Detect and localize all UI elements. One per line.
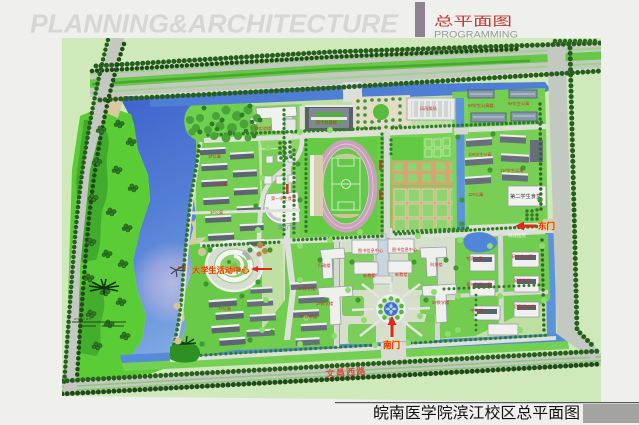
svg-text:滨江广场: 滨江广场 [278, 224, 296, 231]
svg-text:大学生活动中心: 大学生活动中心 [192, 265, 250, 275]
svg-text:7#公寓: 7#公寓 [218, 305, 231, 312]
svg-text:3#公寓: 3#公寓 [210, 209, 223, 216]
svg-text:PROGRAMMING: PROGRAMMING [434, 30, 518, 40]
svg-text:5#教学楼: 5#教学楼 [298, 285, 315, 292]
svg-text:1#公寓: 1#公寓 [208, 153, 221, 160]
svg-text:2#公寓: 2#公寓 [214, 181, 227, 188]
svg-text:总平面图: 总平面图 [434, 15, 512, 29]
svg-text:南门: 南门 [383, 340, 400, 350]
svg-text:行政楼: 行政楼 [318, 262, 331, 269]
svg-text:科技楼: 科技楼 [430, 261, 443, 268]
svg-text:东门: 东门 [538, 221, 555, 231]
svg-text:医大科教楼: 医大科教楼 [316, 119, 337, 126]
svg-text:5#学生公寓楼: 5#学生公寓楼 [468, 102, 494, 109]
svg-text:后勤服务楼: 后勤服务楼 [514, 303, 535, 310]
svg-text:11#学生公寓: 11#学生公寓 [500, 167, 523, 174]
svg-text:留学生楼: 留学生楼 [514, 277, 531, 284]
svg-text:新教楼: 新教楼 [395, 271, 408, 278]
svg-text:研究生公寓: 研究生公寓 [512, 253, 533, 260]
svg-text:2#教学楼: 2#教学楼 [432, 299, 449, 306]
svg-text:1#教学楼: 1#教学楼 [316, 300, 333, 307]
svg-text:12#公寓: 12#公寓 [468, 191, 483, 198]
svg-text:风雨操场: 风雨操场 [420, 105, 437, 112]
svg-text:专家公寓: 专家公寓 [466, 255, 483, 262]
svg-text:6#学生公寓: 6#学生公寓 [508, 100, 529, 107]
svg-text:皖南医学院滨江校区总平面图: 皖南医学院滨江校区总平面图 [373, 403, 580, 422]
svg-text:青年教师公寓: 青年教师公寓 [466, 281, 491, 288]
svg-text:拟建医院: 拟建医院 [508, 232, 526, 239]
svg-text:10#学生公寓: 10#学生公寓 [468, 151, 492, 158]
svg-text:新教楼: 新教楼 [363, 272, 376, 279]
svg-text:图书信息中心: 图书信息中心 [392, 246, 418, 253]
svg-text:4#实验楼: 4#实验楼 [254, 125, 271, 132]
svg-text:第二学生食堂: 第二学生食堂 [510, 192, 541, 200]
svg-text:PLANNING&ARCHITECTURE: PLANNING&ARCHITECTURE [30, 11, 399, 39]
svg-text:6#教学楼: 6#教学楼 [300, 313, 317, 320]
svg-text:中专部: 中专部 [470, 307, 483, 314]
svg-text:图书信息中心: 图书信息中心 [358, 247, 384, 254]
svg-text:w a n n a n: w a n n a n [74, 317, 91, 321]
svg-text:第一学生食堂: 第一学生食堂 [271, 195, 296, 202]
